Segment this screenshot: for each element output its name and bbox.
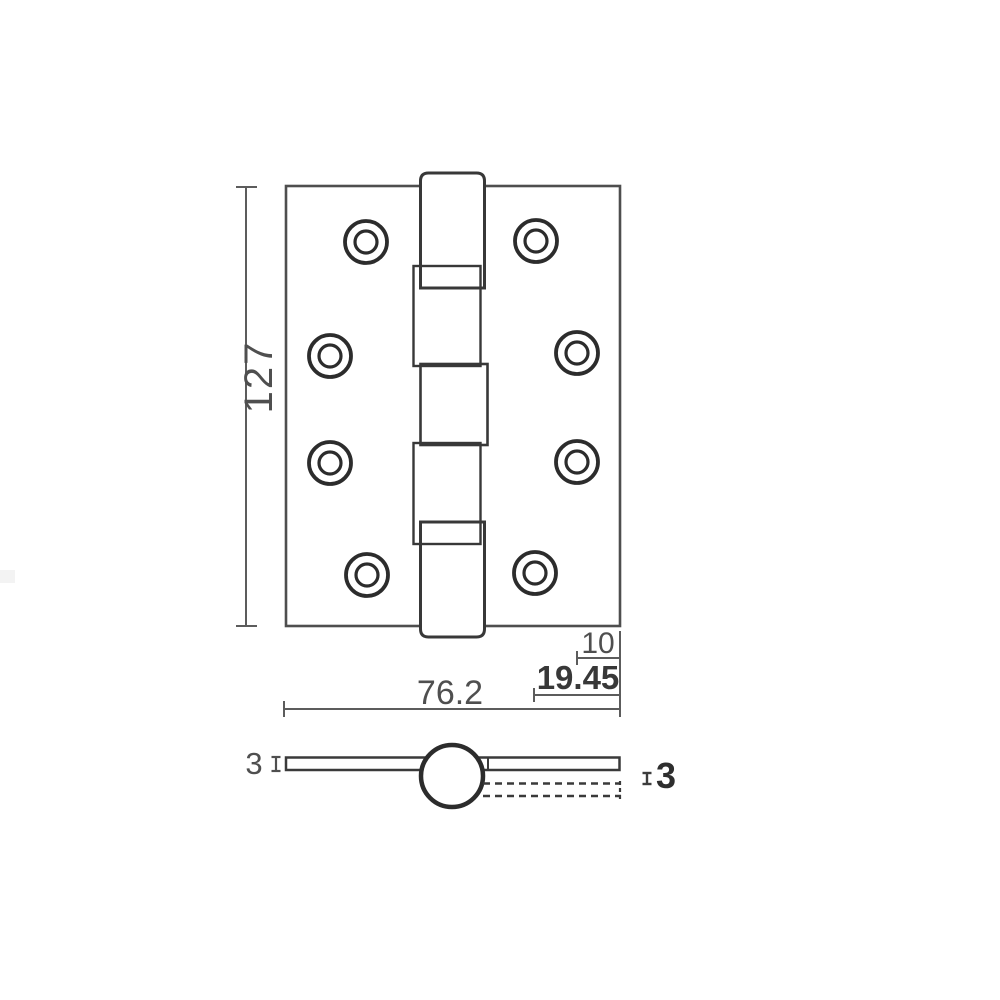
left-thickness-dimension bbox=[272, 757, 281, 771]
front-view: 127 76.2 10 19.45 bbox=[236, 168, 620, 717]
right-thickness-dimension bbox=[643, 773, 652, 784]
section-knuckle-barrel bbox=[421, 745, 483, 807]
right-thickness-label: 3 bbox=[656, 755, 676, 796]
hidden-leaf-dashed bbox=[483, 781, 621, 799]
hinge-technical-drawing: 127 76.2 10 19.45 bbox=[0, 0, 1000, 1000]
section-view: 3 3 bbox=[245, 745, 676, 807]
knuckle-column-mask bbox=[420, 168, 486, 642]
drawing-canvas: 127 76.2 10 19.45 bbox=[0, 0, 1000, 1000]
left-thickness-label: 3 bbox=[245, 746, 262, 781]
width-dimension-label: 76.2 bbox=[417, 674, 483, 712]
pin-offset-dimension-label: 10 bbox=[581, 627, 614, 660]
scan-artifact bbox=[0, 570, 15, 583]
height-dimension-label: 127 bbox=[237, 341, 281, 414]
hole-offset-dimension-label: 19.45 bbox=[537, 659, 620, 696]
